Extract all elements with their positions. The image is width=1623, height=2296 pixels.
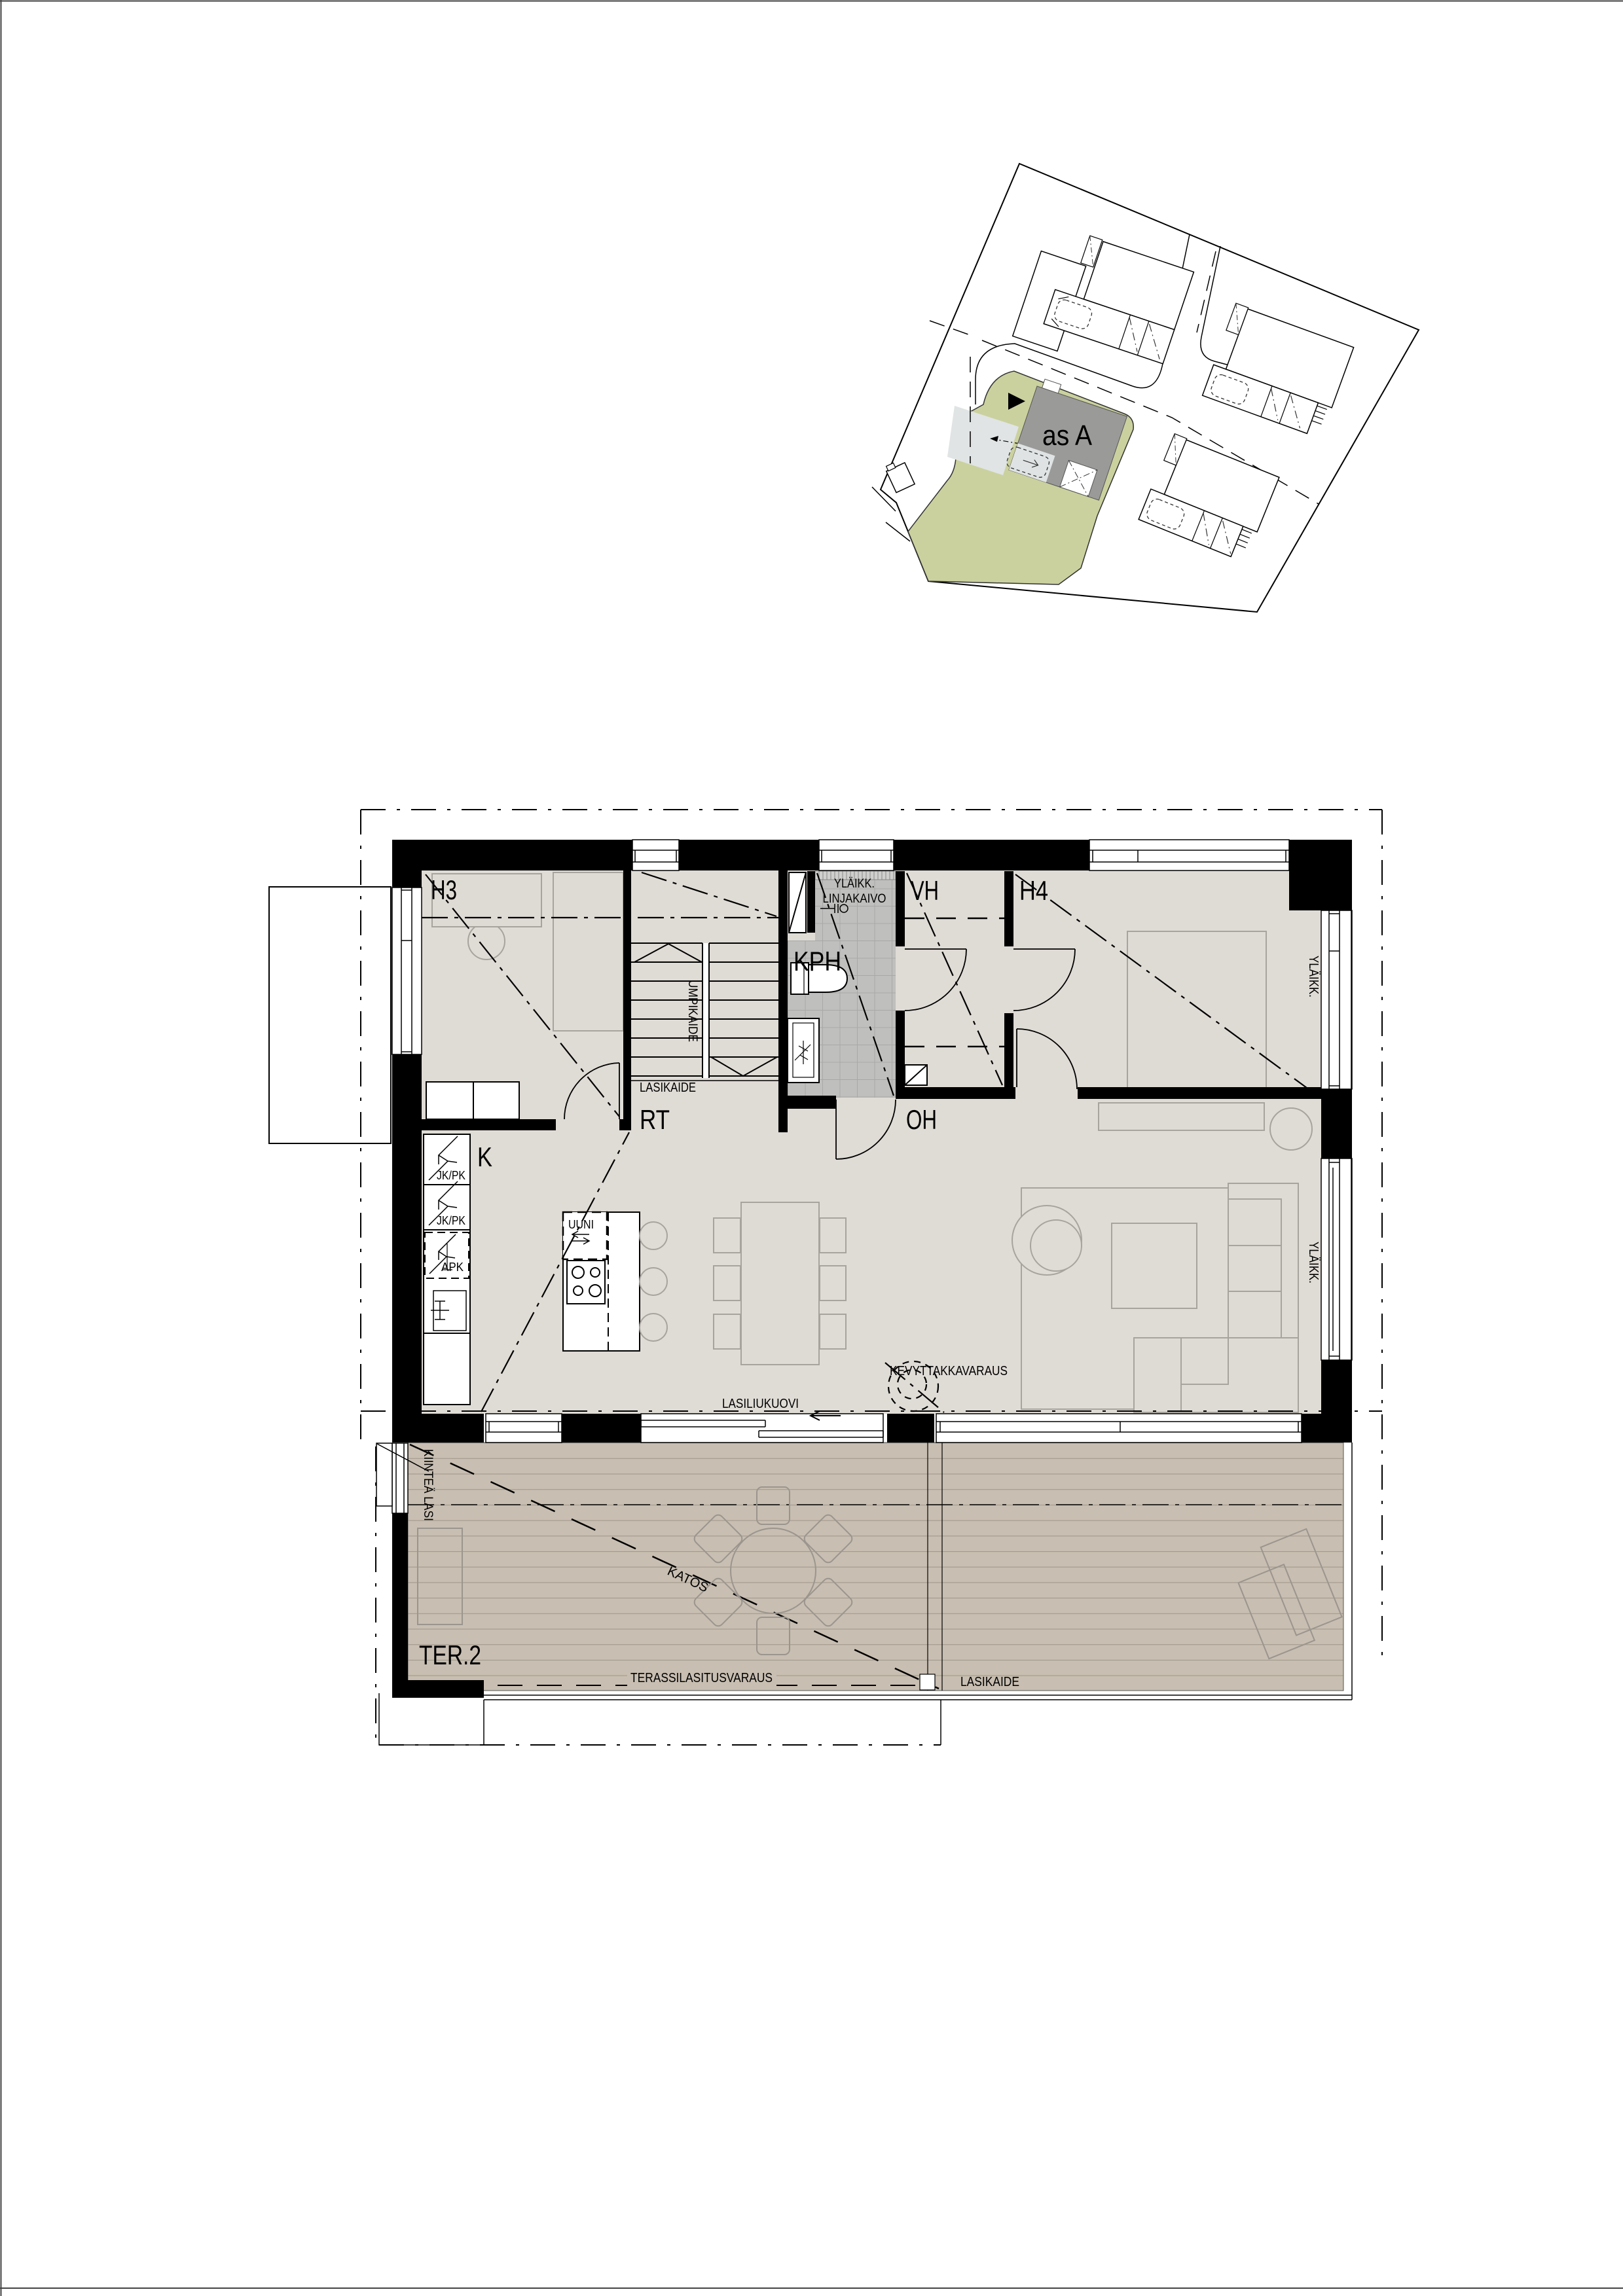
svg-text:K: K [477,1141,492,1172]
svg-text:JK/PK: JK/PK [437,1214,465,1227]
svg-text:LINJAKAIVO: LINJAKAIVO [823,892,886,906]
svg-text:JK/PK: JK/PK [437,1169,465,1182]
svg-text:LASILIUKUOVI: LASILIUKUOVI [722,1397,799,1411]
svg-text:KIINTEÄ LASI: KIINTEÄ LASI [421,1449,435,1521]
svg-text:H4: H4 [1019,875,1048,906]
svg-text:LASIKAIDE: LASIKAIDE [640,1081,696,1095]
svg-text:KPH: KPH [793,946,841,977]
svg-text:H3: H3 [431,874,457,905]
svg-text:OH: OH [906,1104,937,1135]
svg-text:APK: APK [441,1261,464,1274]
svg-text:RT: RT [640,1104,670,1135]
svg-text:VH: VH [911,875,939,906]
svg-text:as A: as A [1042,420,1093,452]
svg-text:UUNI: UUNI [568,1218,594,1231]
svg-text:UMPIKAIDE: UMPIKAIDE [685,980,699,1042]
svg-text:YLÄIKK.: YLÄIKK. [1306,1242,1321,1283]
svg-text:TERASSILASITUSVARAUS: TERASSILASITUSVARAUS [630,1671,773,1685]
svg-text:TER.2: TER.2 [419,1640,481,1670]
svg-text:LASIKAIDE: LASIKAIDE [960,1675,1019,1689]
svg-text:YLÄIKK.: YLÄIKK. [834,877,875,891]
svg-text:YLÄIKK.: YLÄIKK. [1306,956,1321,997]
